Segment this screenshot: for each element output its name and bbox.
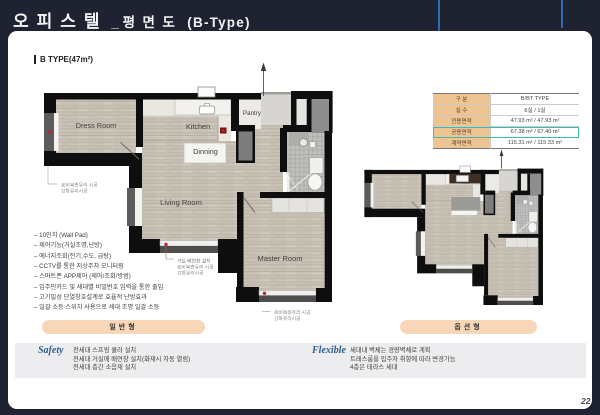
svg-text:Dress Room: Dress Room (76, 121, 117, 130)
svg-text:강화유리시공: 강화유리시공 (61, 188, 88, 195)
svg-text:Dinning: Dinning (193, 147, 218, 156)
svg-text:Kitchen: Kitchen (186, 122, 210, 131)
svg-text:Pantry: Pantry (243, 110, 262, 117)
svg-text:로비복층유리 시공: 로비복층유리 시공 (177, 264, 214, 271)
svg-text:강화유리시공: 강화유리시공 (177, 270, 204, 277)
svg-text:Master Room: Master Room (257, 254, 302, 263)
svg-text:거실 배연창 설치: 거실 배연창 설치 (177, 258, 211, 265)
svg-text:로비복층유리 시공: 로비복층유리 시공 (61, 182, 98, 189)
svg-text:강화유리시공: 강화유리시공 (274, 315, 301, 322)
svg-text:Living Room: Living Room (160, 198, 202, 207)
svg-text:로비복층유리 시공: 로비복층유리 시공 (274, 309, 311, 316)
